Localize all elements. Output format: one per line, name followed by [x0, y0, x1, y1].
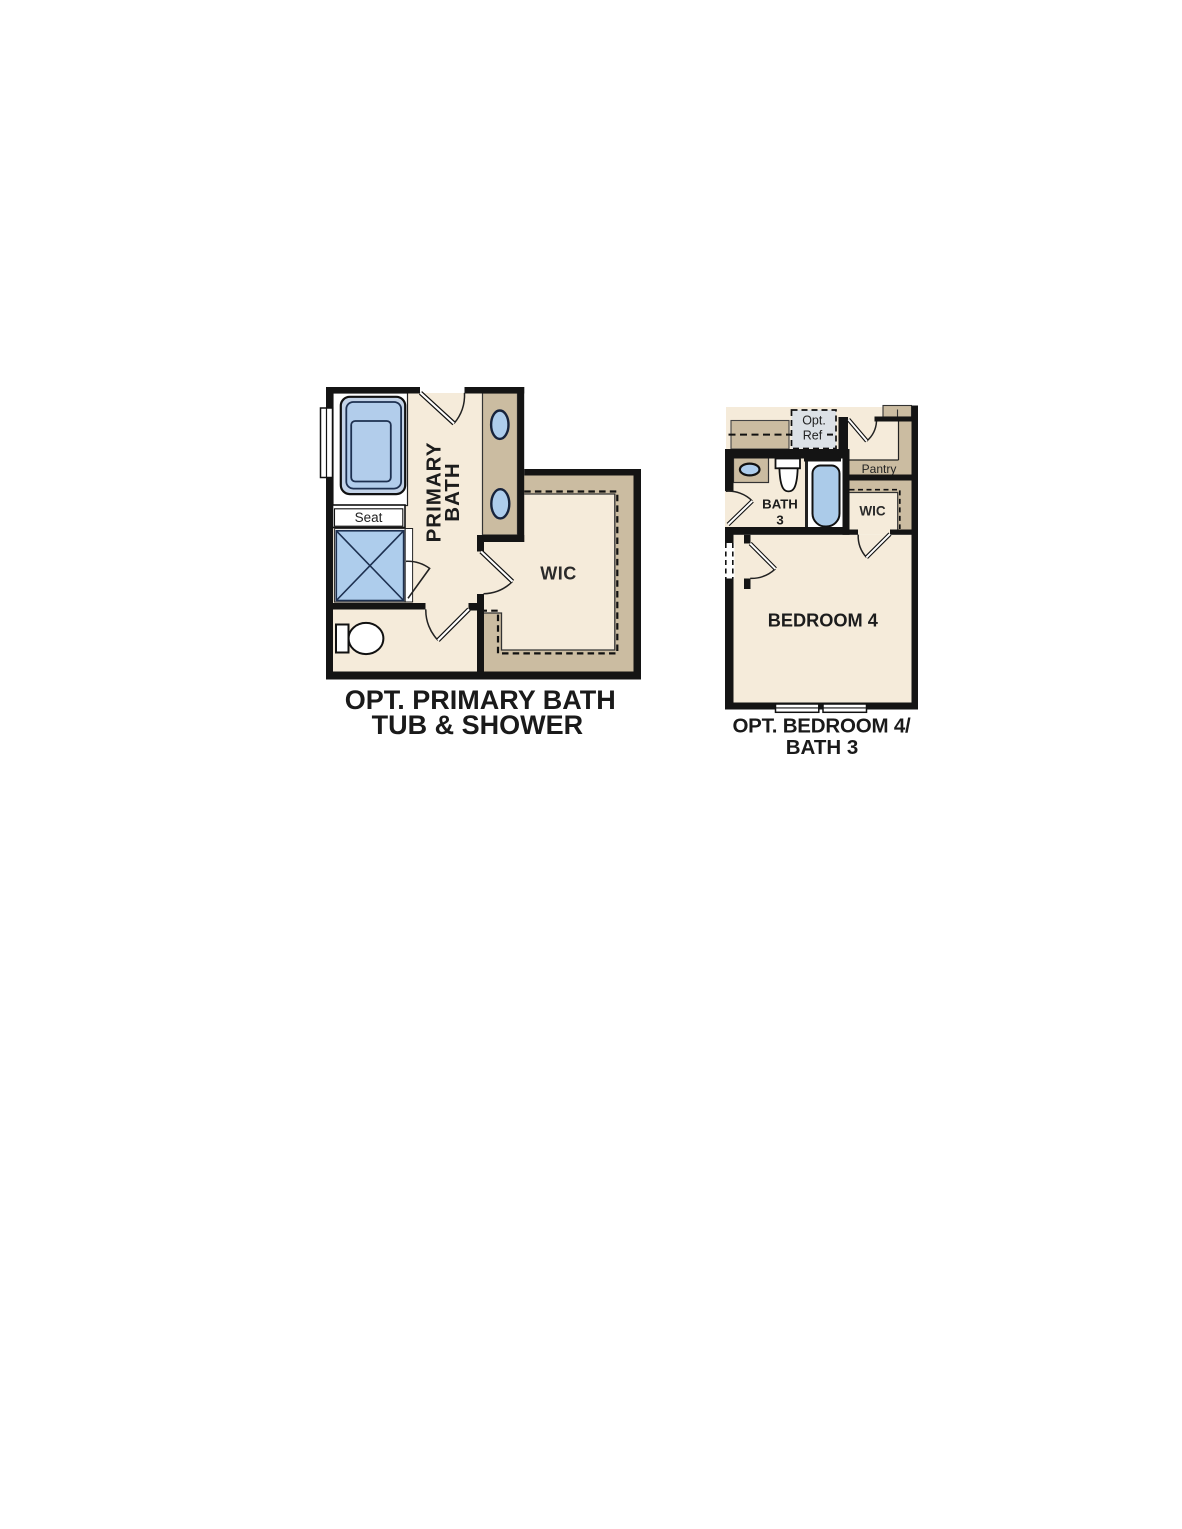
- svg-text:BATH 3: BATH 3: [786, 736, 859, 759]
- svg-text:WIC: WIC: [859, 504, 885, 519]
- svg-text:BEDROOM 4: BEDROOM 4: [768, 610, 879, 630]
- svg-text:TUB & SHOWER: TUB & SHOWER: [372, 710, 584, 740]
- svg-text:Opt.: Opt.: [802, 414, 826, 428]
- svg-text:BATH: BATH: [441, 462, 464, 521]
- svg-text:BATH: BATH: [762, 496, 798, 511]
- svg-text:3: 3: [776, 513, 783, 528]
- svg-text:WIC: WIC: [540, 564, 577, 584]
- svg-text:Ref: Ref: [803, 429, 823, 443]
- svg-text:OPT. BEDROOM 4/: OPT. BEDROOM 4/: [732, 714, 911, 737]
- svg-text:Pantry: Pantry: [862, 462, 897, 476]
- svg-text:Seat: Seat: [355, 510, 383, 525]
